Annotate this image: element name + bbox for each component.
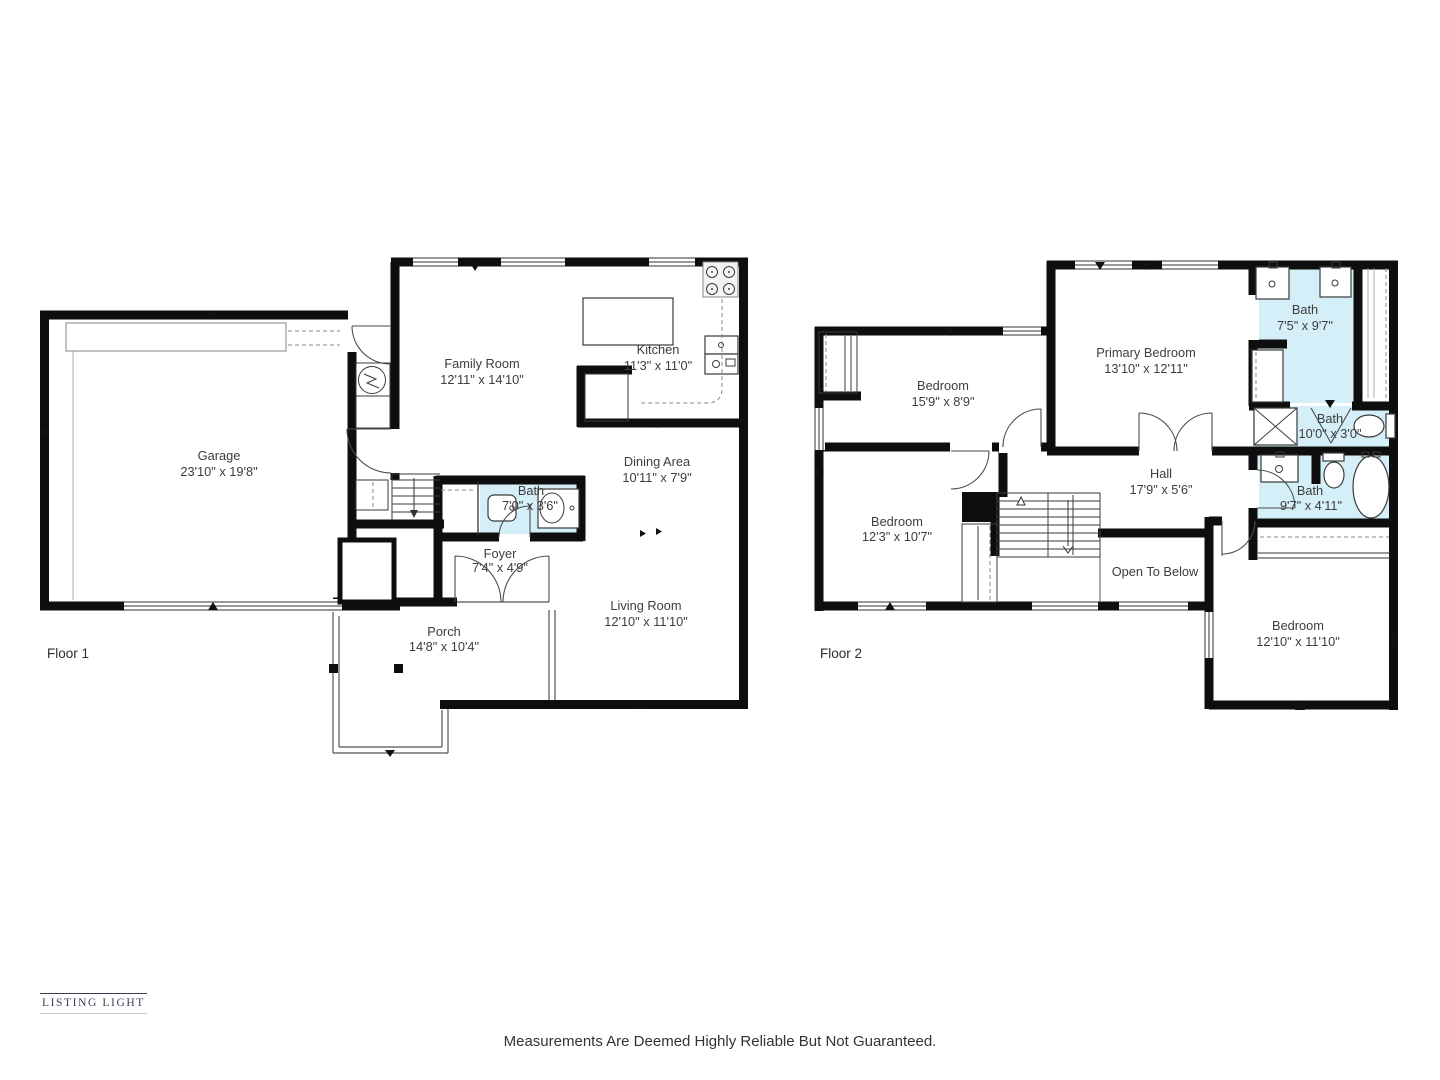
water-heater-icon (356, 363, 390, 396)
hall-cabinet (356, 480, 388, 510)
utility-closet (356, 396, 390, 428)
floor2-windows (813, 259, 1218, 658)
toilet-icon (1323, 453, 1344, 488)
room-label-bath-hall: Bath (1297, 483, 1323, 498)
disclaimer-text: Measurements Are Deemed Highly Reliable … (0, 1033, 1440, 1050)
room-dims-hall: 17'9" x 5'6" (1129, 482, 1192, 497)
floor2-plan: Bedroom 15'9" x 8'9" Primary Bedroom 13'… (813, 259, 1398, 710)
shower-icon (1254, 408, 1297, 445)
room-label-living-room: Living Room (610, 598, 681, 613)
room-dims-bedroom3: 12'10" x 11'10" (1256, 634, 1339, 649)
room-label-family-room: Family Room (444, 356, 519, 371)
room-dims-kitchen: 11'3" x 11'0" (624, 358, 692, 373)
room-dims-porch: 14'8" x 10'4" (409, 639, 479, 654)
room-dims-bath-primary: 7'5" x 9'7" (1277, 318, 1333, 333)
wardrobe-icon (1368, 268, 1386, 398)
door-gap (391, 429, 401, 473)
stairs-down-icon (392, 474, 440, 520)
room-label-kitchen: Kitchen (637, 342, 680, 357)
pantry-closet (585, 374, 628, 421)
bedroom3-closet (1258, 537, 1390, 558)
room-label-bedroom3: Bedroom (1272, 618, 1324, 633)
floorplan-canvas: Garage 23'10" x 19'8" Family Room 12'11"… (0, 0, 1440, 1080)
chimney-chase (962, 492, 996, 522)
room-label-foyer: Foyer (484, 546, 517, 561)
kitchen-island (583, 298, 673, 345)
room-label-hall: Hall (1150, 466, 1172, 481)
room-dims-living-room: 12'10" x 11'10" (604, 614, 687, 629)
room-label-bath-small: Bath (1317, 411, 1343, 426)
floor1-plan: Garage 23'10" x 19'8" Family Room 12'11"… (40, 256, 748, 757)
water-closet (1252, 350, 1283, 402)
room-label-primary-bedroom: Primary Bedroom (1096, 345, 1196, 360)
stairs-up-down-icon (997, 493, 1100, 602)
room-dims-bath1: 7'0" x 3'6" (502, 498, 558, 513)
room-dims-family-room: 12'11" x 14'10" (440, 372, 523, 387)
room-dims-bath-hall: 9'7" x 4'11" (1280, 498, 1342, 513)
room-label-bedroom2: Bedroom (871, 514, 923, 529)
room-label-bath1: Bath (518, 483, 544, 498)
room-label-garage: Garage (198, 448, 241, 463)
room-dims-garage: 23'10" x 19'8" (180, 464, 257, 479)
room-label-bath-primary: Bath (1292, 302, 1318, 317)
closet-icon (819, 332, 857, 393)
room-label-open-to-below: Open To Below (1112, 564, 1199, 579)
garage-door (124, 599, 342, 612)
vanity-sink-icon (1320, 262, 1351, 297)
room-label-porch: Porch (427, 624, 460, 639)
room-label-bedroom1: Bedroom (917, 378, 969, 393)
vanity-sink-icon (1256, 262, 1289, 299)
foyer-closet (340, 540, 394, 602)
floor1-label: Floor 1 (47, 646, 89, 661)
room-dims-bedroom2: 12'3" x 10'7" (862, 529, 932, 544)
brand-logo: LISTING LIGHT (40, 993, 147, 1014)
room-dims-bedroom1: 15'9" x 8'9" (911, 394, 974, 409)
room-dims-foyer: 7'4" x 4'9" (472, 560, 528, 575)
room-dims-bath-small: 10'0" x 3'0" (1298, 426, 1361, 441)
floor1-windows (413, 256, 695, 268)
floor2-label: Floor 2 (820, 646, 862, 661)
stove-icon (703, 262, 738, 297)
room-dims-primary-bedroom: 13'10" x 12'11" (1104, 361, 1187, 376)
room-dims-dining-area: 10'11" x 7'9" (622, 470, 691, 485)
room-label-dining-area: Dining Area (624, 454, 691, 469)
